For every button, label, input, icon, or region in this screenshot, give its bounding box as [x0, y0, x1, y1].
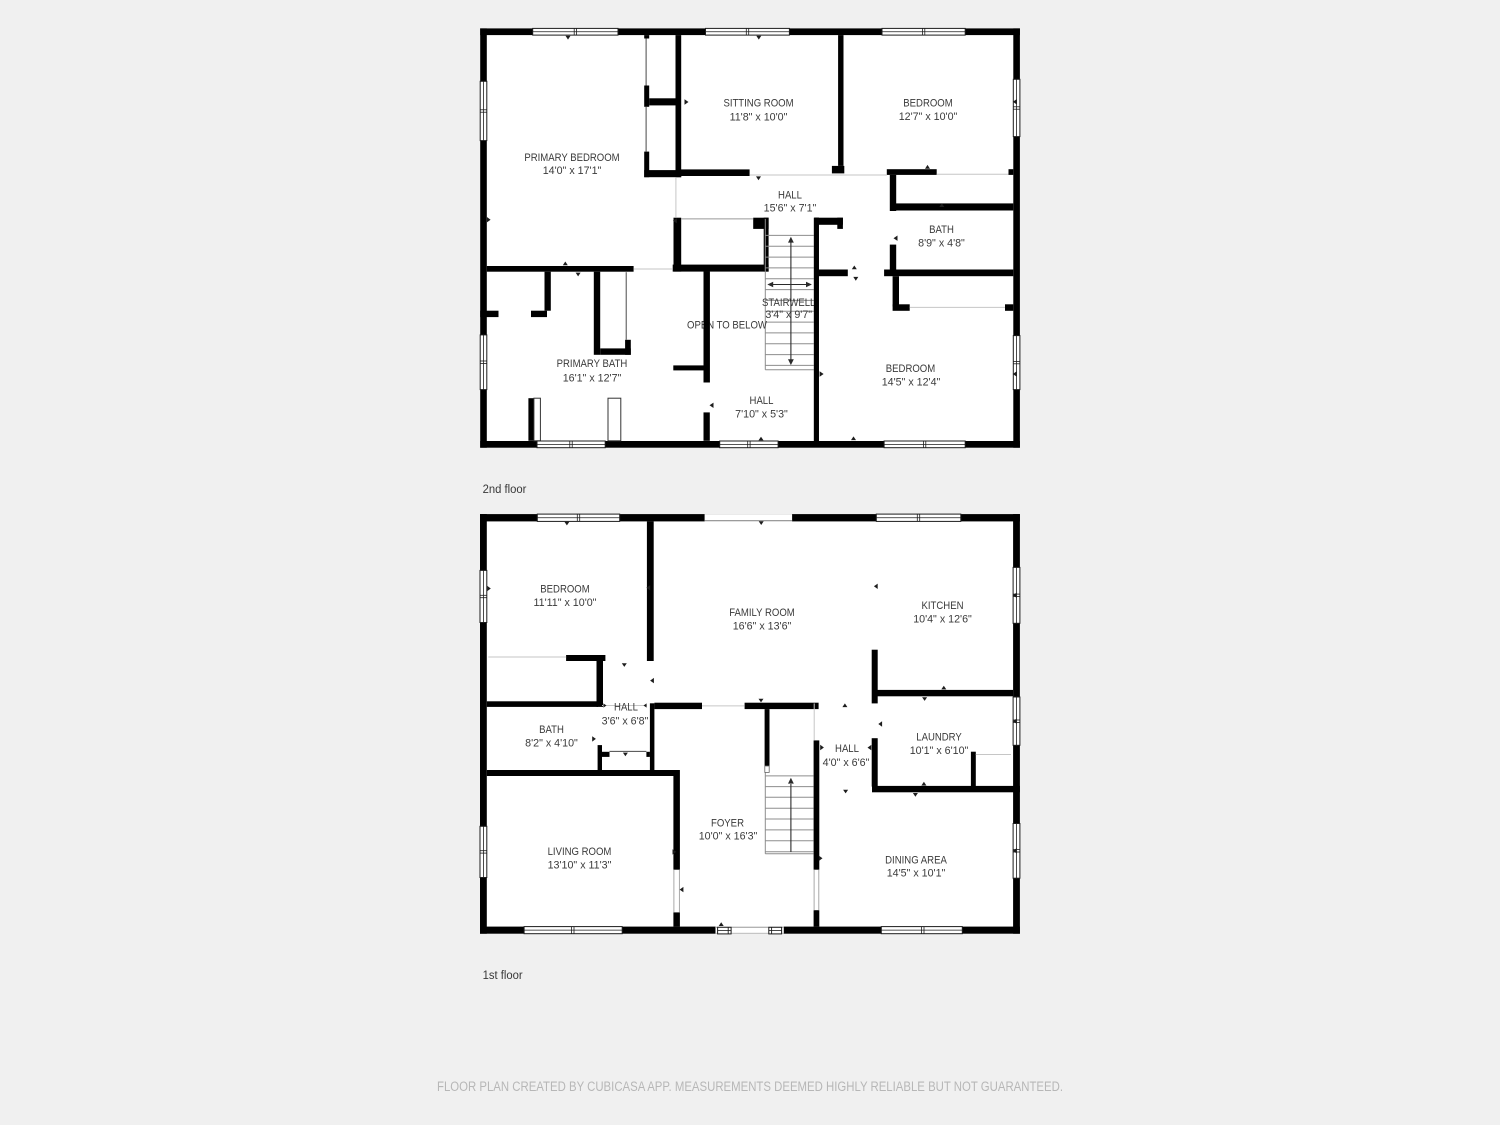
svg-text:13'10" x 11'3": 13'10" x 11'3": [548, 860, 612, 872]
svg-text:12'7" x 10'0": 12'7" x 10'0": [899, 111, 958, 123]
svg-text:10'1" x 6'10": 10'1" x 6'10": [910, 745, 969, 757]
svg-text:FOYER: FOYER: [711, 818, 744, 830]
svg-text:SITTING ROOM: SITTING ROOM: [723, 97, 793, 109]
svg-text:FAMILY ROOM: FAMILY ROOM: [729, 607, 795, 619]
svg-text:STAIRWELL: STAIRWELL: [762, 297, 815, 309]
svg-text:PRIMARY BATH: PRIMARY BATH: [557, 358, 628, 370]
svg-text:KITCHEN: KITCHEN: [922, 600, 964, 612]
svg-text:3'6" x 6'8": 3'6" x 6'8": [602, 715, 649, 727]
svg-text:4'0" x 6'6": 4'0" x 6'6": [823, 757, 870, 769]
svg-text:11'8" x 10'0": 11'8" x 10'0": [730, 112, 788, 124]
svg-text:DINING AREA: DINING AREA: [885, 855, 947, 867]
svg-text:LIVING ROOM: LIVING ROOM: [548, 846, 612, 858]
svg-text:3'4" x 9'7": 3'4" x 9'7": [765, 309, 812, 321]
svg-text:8'9" x 4'8": 8'9" x 4'8": [918, 237, 965, 249]
svg-text:LAUNDRY: LAUNDRY: [916, 732, 962, 744]
svg-text:14'5" x 12'4": 14'5" x 12'4": [882, 377, 941, 389]
svg-text:BEDROOM: BEDROOM: [903, 97, 952, 109]
svg-text:HALL: HALL: [835, 743, 859, 755]
svg-text:BATH: BATH: [539, 724, 564, 736]
svg-text:7'10" x 5'3": 7'10" x 5'3": [735, 409, 788, 421]
svg-text:BEDROOM: BEDROOM: [886, 363, 935, 375]
svg-text:10'4" x 12'6": 10'4" x 12'6": [913, 614, 972, 626]
svg-text:16'1" x 12'7": 16'1" x 12'7": [563, 372, 622, 384]
svg-text:1st floor: 1st floor: [483, 970, 523, 982]
svg-text:8'2" x 4'10": 8'2" x 4'10": [525, 737, 578, 749]
svg-text:15'6" x 7'1": 15'6" x 7'1": [764, 203, 817, 215]
svg-text:10'0" x 16'3": 10'0" x 16'3": [699, 830, 758, 842]
svg-text:HALL: HALL: [778, 190, 802, 202]
svg-text:BATH: BATH: [929, 224, 954, 236]
svg-text:14'0" x 17'1": 14'0" x 17'1": [543, 165, 602, 177]
svg-text:14'5" x 10'1": 14'5" x 10'1": [887, 867, 946, 879]
svg-text:2nd floor: 2nd floor: [483, 484, 527, 496]
svg-text:BEDROOM: BEDROOM: [540, 584, 589, 596]
svg-text:HALL: HALL: [614, 702, 638, 714]
svg-text:16'6" x 13'6": 16'6" x 13'6": [733, 621, 792, 633]
svg-text:HALL: HALL: [750, 395, 774, 407]
svg-text:11'11" x 10'0": 11'11" x 10'0": [534, 597, 597, 609]
svg-text:PRIMARY BEDROOM: PRIMARY BEDROOM: [524, 152, 619, 164]
svg-text:FLOOR PLAN CREATED BY CUBICASA: FLOOR PLAN CREATED BY CUBICASA APP. MEAS…: [437, 1079, 1063, 1094]
svg-text:OPEN TO BELOW: OPEN TO BELOW: [687, 320, 768, 332]
